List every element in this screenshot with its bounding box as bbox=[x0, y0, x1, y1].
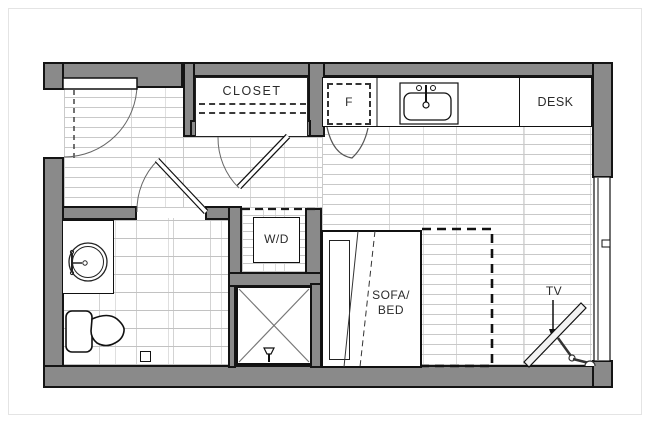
tv-label: TV bbox=[539, 284, 569, 298]
left-wall-corner bbox=[43, 62, 64, 90]
closet-rod bbox=[199, 103, 306, 105]
top-wall-left bbox=[43, 62, 183, 88]
closet-shelf bbox=[199, 112, 306, 114]
laundry-bottom-wall bbox=[228, 272, 322, 287]
fridge-label: F bbox=[327, 95, 371, 109]
hallway-floor bbox=[183, 135, 322, 208]
bathroom-top-wall bbox=[62, 206, 137, 220]
wall-fixture bbox=[140, 351, 151, 362]
left-wall bbox=[43, 157, 64, 388]
entry-hall-floor bbox=[64, 86, 183, 208]
sofa-cushion bbox=[329, 240, 350, 360]
sofa-bed-label-line2: BED bbox=[355, 303, 427, 317]
bathroom-vanity bbox=[62, 220, 114, 294]
top-wall bbox=[183, 62, 613, 77]
sofa-bed-label-line1: SOFA/ bbox=[355, 288, 427, 302]
floor-plan: CLOSET F DESK W/D SOFA/ BED TV bbox=[0, 0, 650, 423]
wd-label: W/D bbox=[253, 232, 300, 246]
shower bbox=[236, 286, 312, 365]
bottom-wall bbox=[43, 365, 613, 388]
closet-label: CLOSET bbox=[196, 84, 308, 98]
desk-label: DESK bbox=[519, 95, 592, 109]
right-wall-top bbox=[592, 62, 613, 178]
right-wall-bottom bbox=[592, 360, 613, 388]
